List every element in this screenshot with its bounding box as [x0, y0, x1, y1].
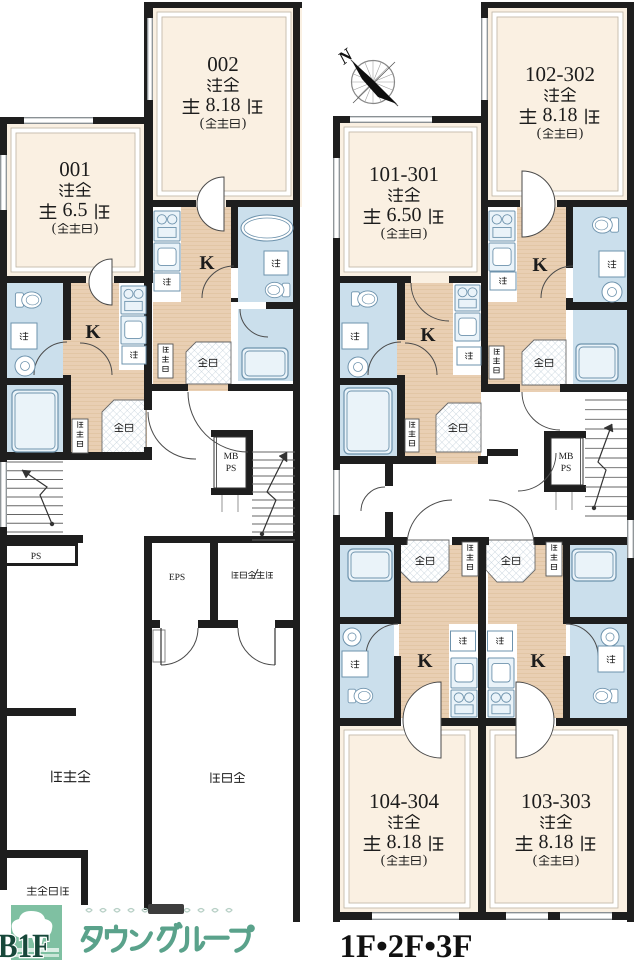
svg-text:(: (: [200, 115, 205, 130]
svg-text:104-304: 104-304: [369, 789, 439, 813]
svg-text:8.18: 8.18: [543, 104, 578, 126]
svg-text:102-302: 102-302: [525, 62, 595, 86]
svg-text:6.50: 6.50: [387, 204, 422, 226]
svg-text:MB: MB: [559, 452, 574, 462]
svg-text:): ): [94, 220, 99, 235]
svg-text:(: (: [52, 220, 57, 235]
svg-text:MB: MB: [224, 452, 239, 462]
svg-text:(: (: [381, 225, 386, 240]
svg-text:PS: PS: [226, 464, 237, 474]
svg-text:8.18: 8.18: [539, 831, 574, 853]
svg-text:): ): [423, 225, 428, 240]
svg-text:8.18: 8.18: [206, 94, 241, 116]
svg-text:K: K: [530, 651, 546, 672]
svg-text:PS: PS: [561, 464, 572, 474]
svg-text:): ): [242, 115, 247, 130]
svg-text:(: (: [537, 125, 542, 140]
svg-text:K: K: [199, 253, 215, 274]
svg-text:): ): [579, 125, 584, 140]
svg-text:K: K: [420, 325, 436, 346]
svg-text:): ): [575, 852, 580, 867]
svg-text:(: (: [533, 852, 538, 867]
svg-text:1F•2F•3F: 1F•2F•3F: [339, 929, 472, 960]
svg-text:K: K: [417, 651, 433, 672]
svg-text:K: K: [85, 322, 101, 343]
svg-text:K: K: [532, 255, 548, 276]
svg-text:EPS: EPS: [169, 573, 185, 583]
svg-text:PS: PS: [31, 552, 42, 562]
svg-text:6.5: 6.5: [63, 199, 88, 221]
svg-text:103-303: 103-303: [521, 789, 591, 813]
svg-text:002: 002: [207, 52, 239, 76]
svg-text:B1F: B1F: [0, 928, 50, 960]
svg-text:101-301: 101-301: [369, 162, 439, 186]
svg-text:8.18: 8.18: [387, 831, 422, 853]
svg-text:): ): [423, 852, 428, 867]
svg-text:(: (: [381, 852, 386, 867]
svg-text:001: 001: [59, 157, 91, 181]
